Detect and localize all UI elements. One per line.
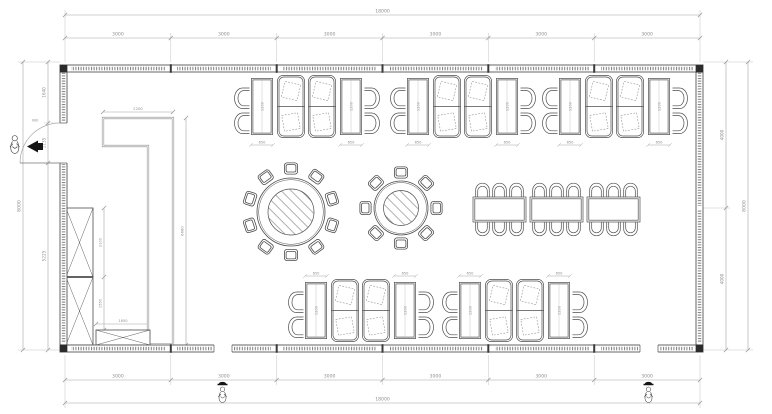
bottom-seg-dim: 3000 — [641, 373, 653, 379]
entrance-bottom-1 — [218, 382, 228, 403]
right-seg-dim: 4000 — [719, 129, 724, 140]
person-figure-icon — [10, 136, 20, 154]
top-seg-dim: 3000 — [324, 32, 336, 38]
counter-length-dim: 2200 — [133, 106, 143, 111]
hat-marker-icon — [644, 382, 654, 385]
booth-group-bottom-2 — [443, 279, 588, 341]
bottom-seg-dim: 3000 — [112, 373, 124, 379]
low-cabinet — [96, 330, 150, 345]
right-total-dim: 8000 — [741, 200, 747, 212]
long-table — [473, 183, 640, 236]
booth-group-top-3 — [543, 75, 688, 137]
top-seg-dim: 3000 — [112, 32, 124, 38]
hat-marker-icon — [218, 382, 228, 385]
cabinet-width-dim: 1650 — [118, 319, 128, 323]
booth-group-top-2 — [391, 75, 536, 137]
top-seg-dim: 3000 — [641, 32, 653, 38]
top-seg-dim: 3000 — [218, 32, 230, 38]
bottom-seg-dim: 3000 — [430, 373, 442, 379]
door-opening-bottom-2 — [640, 344, 658, 352]
long-table-tops — [473, 197, 640, 222]
top-seg-dim: 3000 — [430, 32, 442, 38]
top-seg-dim: 3000 — [535, 32, 547, 38]
counter-depth-dim: 6680 — [180, 226, 185, 236]
person-figure-icon — [218, 387, 226, 403]
top-total-dim: 18000 — [375, 9, 390, 15]
floor-plan-drawing: 1200 650 — [0, 0, 772, 414]
left-seg-dim: 1640 — [41, 87, 46, 98]
long-table-chairs-bottom — [476, 222, 638, 236]
entrance-left — [10, 123, 60, 163]
person-figure-icon — [644, 387, 652, 403]
door-opening-bottom-1 — [214, 344, 232, 352]
tall-cabinet — [66, 208, 93, 345]
wall-left-glazing — [62, 72, 66, 343]
door-opening-left — [59, 123, 67, 163]
bottom-seg-dim: 3000 — [324, 373, 336, 379]
round-table-large — [243, 163, 340, 261]
long-table-chairs-top — [476, 183, 638, 197]
cabinet-lower-dim: 1550 — [98, 298, 102, 308]
cabinet-upper-dim: 2100 — [98, 237, 102, 247]
bottom-seg-dim: 3000 — [535, 373, 547, 379]
round-table-small — [360, 167, 442, 249]
door-width-dim: 900 — [32, 119, 40, 123]
booth-group-bottom-1 — [289, 279, 434, 341]
booth-group-top-1 — [235, 75, 380, 137]
floor-plan-canvas: 1200 650 — [0, 0, 772, 414]
left-total-dim: 8000 — [17, 200, 23, 212]
section-marker-bar — [38, 143, 43, 150]
bottom-seg-dim: 3000 — [218, 373, 230, 379]
bottom-total-dim: 18000 — [375, 397, 390, 403]
right-seg-dim: 4000 — [719, 273, 724, 284]
bar-counter — [103, 118, 173, 345]
entrance-bottom-2 — [644, 382, 654, 403]
left-seg-dim: 5225 — [41, 250, 46, 261]
section-marker-icon — [27, 141, 38, 153]
